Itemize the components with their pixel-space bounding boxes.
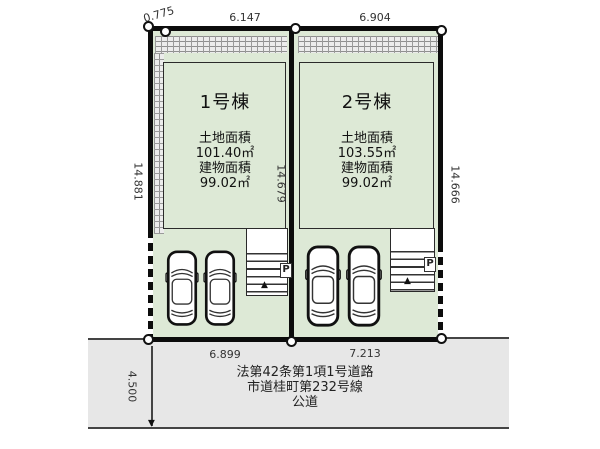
dim-left-side: 14.881	[132, 159, 145, 205]
boundary-right-dashed	[438, 252, 443, 337]
dim-top-lot2: 6.904	[320, 11, 430, 24]
boundary-point	[286, 336, 297, 347]
road-label: 法第42条第1項1号道路 市道桂町第232号線 公道	[160, 365, 450, 410]
road-edge-left	[88, 338, 150, 340]
lot2-building-area-value: 99.02㎡	[300, 176, 434, 191]
boundary-point	[160, 26, 171, 37]
boundary-middle	[289, 26, 294, 342]
road-name-text: 市道桂町第232号線	[160, 380, 450, 395]
lot1-land-area-label: 土地面積	[164, 131, 286, 146]
lot1-name: 1号棟	[164, 88, 286, 114]
dim-bottom-lot2: 7.213	[310, 347, 420, 360]
lot2-name: 2号棟	[300, 88, 434, 114]
car-icon	[345, 245, 383, 329]
dim-bottom-lot1: 6.899	[170, 348, 280, 361]
lot2-setback-strip-top	[298, 36, 438, 53]
lot2-building-area-label: 建物面積	[300, 161, 434, 176]
boundary-point	[290, 23, 301, 34]
boundary-point	[143, 21, 154, 32]
lot2-entrance-marker: ▲	[404, 277, 411, 286]
dim-right-side: 14.666	[449, 162, 462, 208]
car-icon	[163, 250, 201, 328]
lot1-land-area-value: 101.40㎡	[164, 146, 286, 161]
site-plan: 法第42条第1項1号道路 市道桂町第232号線 公道 ▲ 4.500 1号棟 土…	[0, 0, 600, 449]
lot2-area-text: 土地面積 103.55㎡ 建物面積 99.02㎡	[300, 131, 434, 191]
car-icon	[304, 245, 342, 329]
dim-road-depth: 4.500	[126, 367, 139, 407]
boundary-left-dashed	[148, 238, 153, 337]
lot1-area-text: 土地面積 101.40㎡ 建物面積 99.02㎡	[164, 131, 286, 191]
road-depth-arrow: ▲	[148, 418, 155, 427]
road-edge-right	[443, 337, 509, 339]
lot2-land-area-value: 103.55㎡	[300, 146, 434, 161]
road-law-text: 法第42条第1項1号道路	[160, 365, 450, 380]
lot1-setback-strip-top	[155, 36, 287, 53]
dim-middle-side: 14.679	[275, 161, 288, 207]
lot1-parking-sign: P	[280, 263, 292, 278]
boundary-point	[436, 333, 447, 344]
boundary-point	[143, 334, 154, 345]
lot1-building-area-label: 建物面積	[164, 161, 286, 176]
lot2-parking-sign: P	[424, 257, 436, 272]
lot2-land-area-label: 土地面積	[300, 131, 434, 146]
car-icon	[201, 250, 239, 328]
dim-top-lot1: 6.147	[190, 11, 300, 24]
lot1-entrance-marker: ▲	[261, 281, 268, 290]
boundary-point	[436, 25, 447, 36]
road-type-text: 公道	[160, 395, 450, 410]
lot1-building-area-value: 99.02㎡	[164, 176, 286, 191]
road-depth-dimline	[151, 346, 153, 426]
